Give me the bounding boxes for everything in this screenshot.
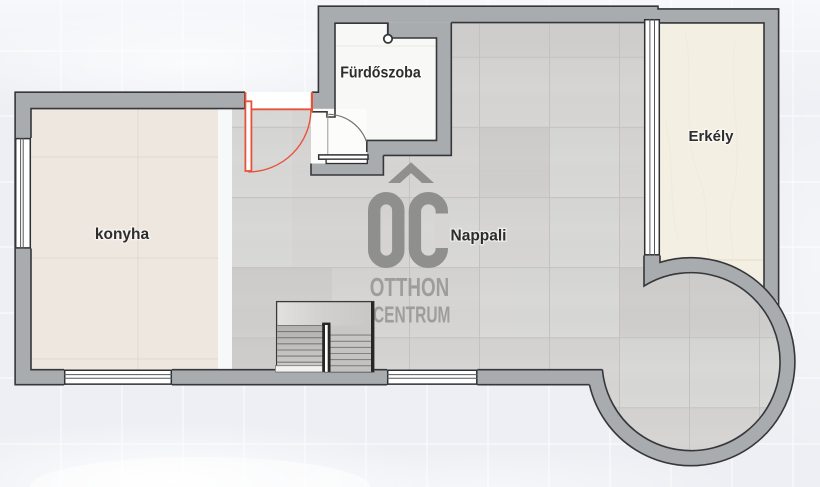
svg-text:Nappali: Nappali xyxy=(451,228,507,245)
svg-text:CENTRUM: CENTRUM xyxy=(373,301,451,327)
svg-text:Fürdőszoba: Fürdőszoba xyxy=(340,65,421,82)
svg-text:konyha: konyha xyxy=(95,226,150,243)
svg-text:OTTHON: OTTHON xyxy=(370,274,450,302)
svg-text:Erkély: Erkély xyxy=(688,128,734,145)
